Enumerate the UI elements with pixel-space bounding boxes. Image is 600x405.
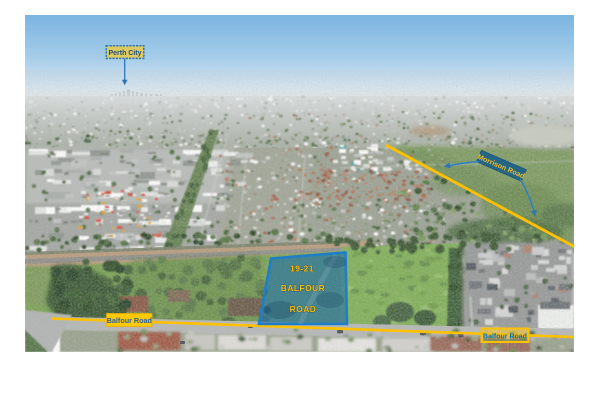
svg-text:ROAD: ROAD [290, 304, 317, 314]
svg-text:Perth City: Perth City [108, 50, 141, 57]
svg-text:Balfour Road: Balfour Road [483, 334, 527, 341]
svg-text:19-21: 19-21 [290, 264, 314, 274]
svg-text:Balfour Road: Balfour Road [107, 316, 152, 325]
svg-text:BALFOUR: BALFOUR [281, 283, 325, 293]
